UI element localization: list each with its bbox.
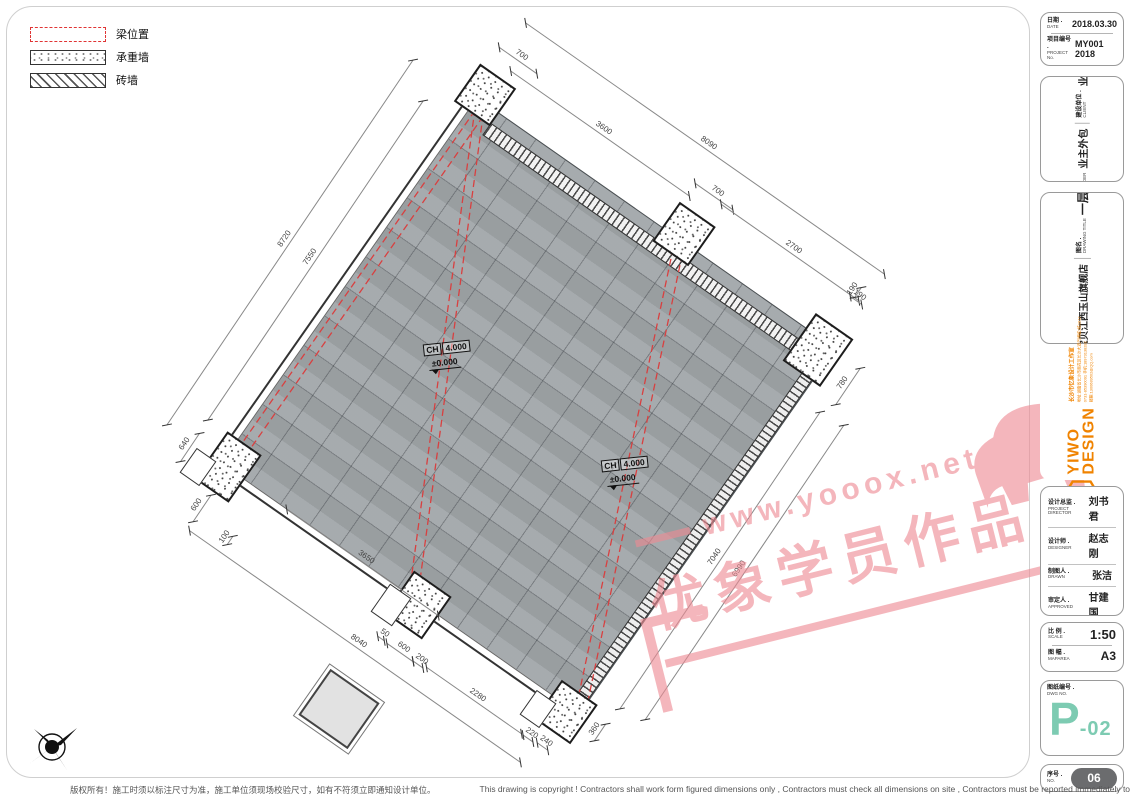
director-value: 刘书君 [1089, 493, 1116, 523]
client-value: 业主外包 [1075, 76, 1090, 86]
project-no-value: MY001 2018 [1075, 39, 1117, 59]
legend-item-brick-wall: 砖墙 [30, 72, 149, 88]
drawing-title-label-en: DRAWING TITLE [1083, 218, 1088, 253]
scale-value: 1:50 [1090, 627, 1116, 642]
dwg-no-value: P -02 [1049, 699, 1117, 741]
legend-item-beam: 梁位置 [30, 26, 149, 42]
north-arrow-icon [22, 716, 84, 774]
drawn-label-en: DRAWN [1048, 575, 1088, 580]
leader-value: 业主外包 [1075, 128, 1090, 168]
level-label: CH 4.000 ±0.000 [601, 456, 650, 488]
drawing-sheet: { "legend": { "items": [ {"label": "梁位置"… [0, 0, 1131, 800]
legend-label: 承重墙 [116, 49, 149, 65]
beam-swatch [30, 27, 106, 42]
legend-label: 梁位置 [116, 26, 149, 42]
studio-contact: 长沙市忆象设计工作室 地址:湖南省长沙市雨花区长沙大道汽博城1栋1812 073… [1069, 316, 1095, 402]
ch-height: 4.000 [620, 456, 648, 471]
date-value: 2018.03.30 [1072, 19, 1117, 29]
divider [1075, 122, 1090, 123]
drawn-value: 张洁 [1092, 567, 1112, 582]
bearing-wall-swatch [30, 50, 106, 65]
project-no-label-en: PROJECT No. [1047, 51, 1071, 61]
sheet-size-label-en: MAPAREA [1048, 657, 1070, 662]
footer-notes: 版权所有！施工时须以标注尺寸为准，施工单位须现场校验尺寸，如有不符须立即通知设计… [70, 784, 1131, 796]
designer-value: 赵志刚 [1089, 530, 1116, 560]
studio-email: 邮箱:1300689502@QQ.com [1089, 316, 1095, 402]
legend-label: 砖墙 [116, 72, 138, 88]
director-label-en: PROJECT DIRECTOR [1048, 507, 1085, 517]
project-no-label: 项目编号 . [1047, 37, 1071, 51]
yiwo-logo-block: YIWO DESIGN 长沙市忆象设计工作室 地址:湖南省长沙市雨花区长沙大道汽… [1040, 350, 1124, 480]
scale-label-en: SCALE [1048, 635, 1065, 640]
legend: 梁位置 承重墙 砖墙 [30, 26, 149, 95]
legend-item-bearing-wall: 承重墙 [30, 49, 149, 65]
drawing-title-value: 一层原始结构图 [1074, 192, 1091, 215]
brick-wall-swatch [30, 73, 106, 88]
divider [1052, 645, 1112, 646]
sheet-size-value: A3 [1101, 649, 1116, 663]
footer-note-en: This drawing is copyright ! Contractors … [480, 784, 1131, 796]
brand-text: YIWO DESIGN [1067, 407, 1097, 474]
titleblock-date: 日期 . DATE 2018.03.30 项目编号 . PROJECT No. … [1040, 12, 1124, 66]
divider [1051, 33, 1113, 34]
titleblock-scale: 比 例 . SCALE 1:50 图 幅 . MAPAREA A3 [1040, 622, 1124, 672]
date-label-en: DATE [1047, 25, 1062, 30]
divider [1074, 258, 1091, 259]
approved-label-en: APPROVED [1048, 605, 1085, 610]
designer-label-en: DESIGNER [1048, 546, 1085, 551]
ch-height: 4.000 [442, 340, 470, 355]
level-label: CH 4.000 ±0.000 [423, 340, 472, 372]
approved-value: 甘建国 [1089, 589, 1116, 616]
ch-tag: CH [601, 459, 620, 473]
dwg-no-main: P [1049, 699, 1080, 740]
ch-tag: CH [423, 343, 442, 357]
dwg-no-suffix: -02 [1080, 718, 1112, 741]
brand-line2: DESIGN [1082, 407, 1097, 474]
titleblock-dwg-no: 图纸编号 . DWG NO. P -02 [1040, 680, 1124, 756]
titleblock-leader-client: 工程负责 PROJECT LEADER 业主外包 建设单位 . CLIENT 业… [1040, 76, 1124, 182]
leader-label-en: PROJECT LEADER [1083, 172, 1088, 182]
watermark-bar [635, 527, 691, 547]
client-label-en: CLIENT [1083, 90, 1088, 117]
titleblock-personnel: 设计总监 . PROJECT DIRECTOR 刘书君 设计师 . DESIGN… [1040, 486, 1124, 616]
footer-note-zh: 版权所有！施工时须以标注尺寸为准，施工单位须现场校验尺寸，如有不符须立即通知设计… [70, 784, 436, 796]
